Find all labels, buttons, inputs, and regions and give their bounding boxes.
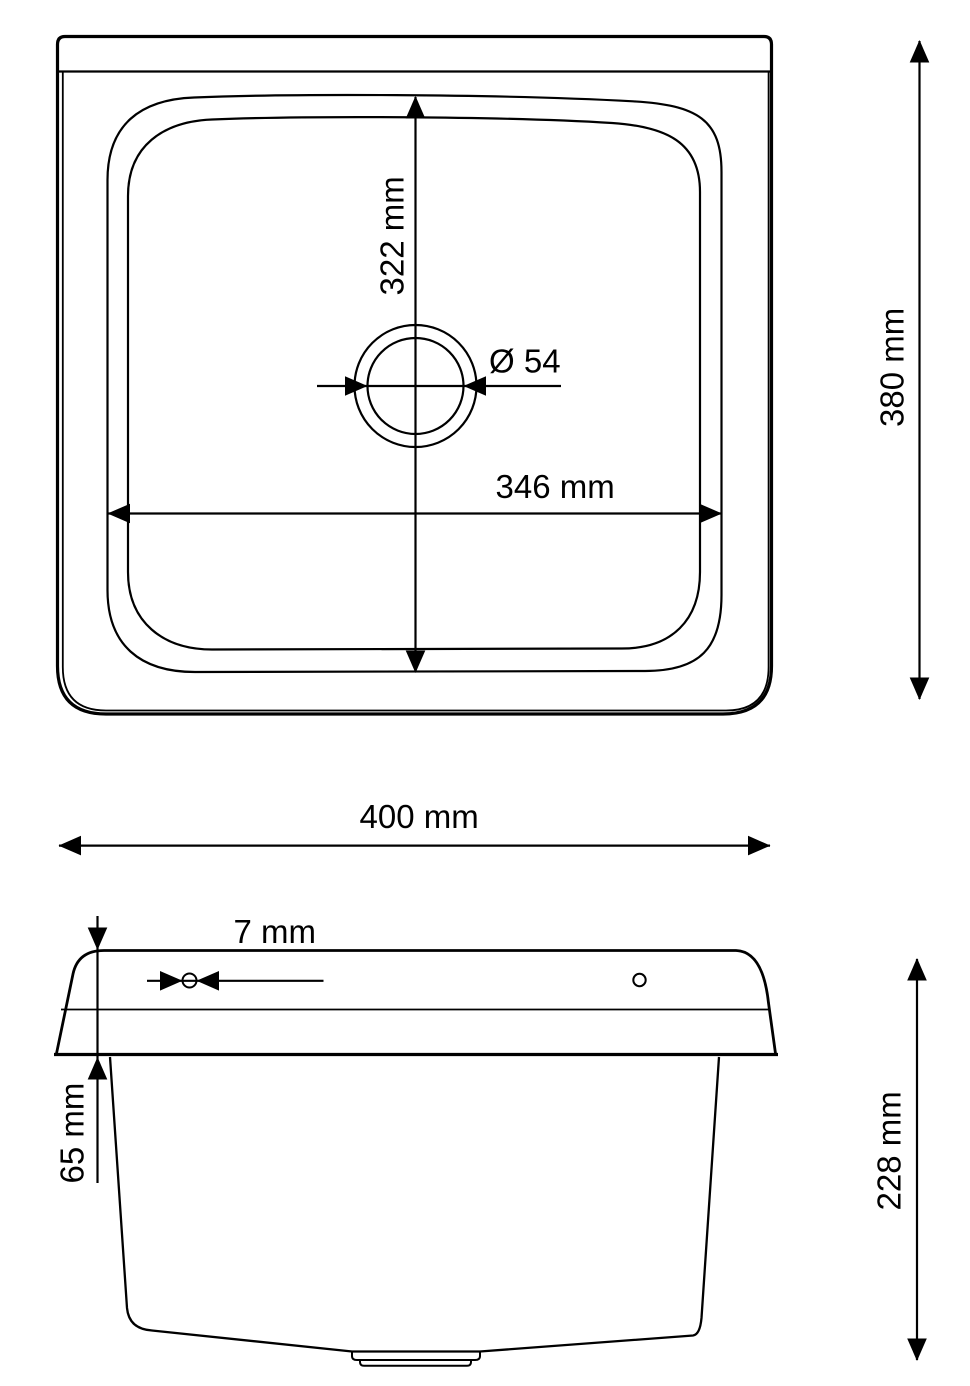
svg-text:228 mm: 228 mm	[871, 1091, 908, 1210]
svg-text:322 mm: 322 mm	[374, 176, 411, 295]
svg-text:380 mm: 380 mm	[874, 308, 911, 427]
svg-text:65 mm: 65 mm	[54, 1083, 91, 1184]
svg-text:400 mm: 400 mm	[360, 798, 479, 835]
svg-text:7 mm: 7 mm	[234, 913, 317, 950]
svg-text:Ø 54: Ø 54	[489, 343, 561, 380]
svg-text:346 mm: 346 mm	[496, 468, 615, 505]
